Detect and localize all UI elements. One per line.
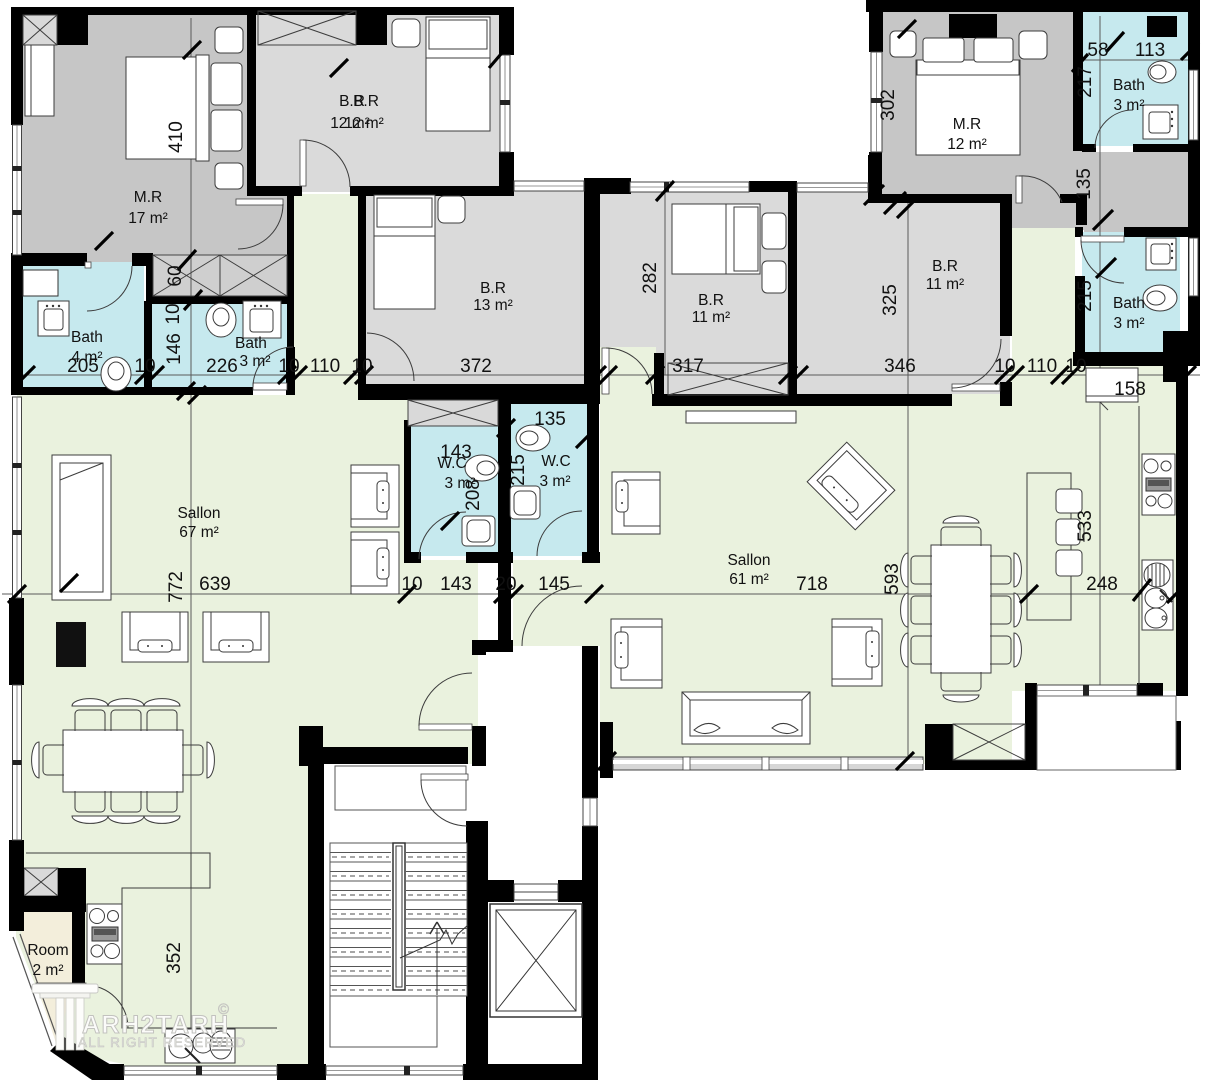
svg-text:226: 226 (206, 356, 238, 377)
svg-text:B.R: B.R (698, 292, 724, 309)
svg-text:4 m²: 4 m² (72, 349, 103, 366)
svg-text:20: 20 (495, 574, 516, 595)
svg-text:2 m²: 2 m² (33, 962, 64, 979)
svg-text:352: 352 (164, 942, 185, 974)
svg-text:©: © (218, 1001, 229, 1018)
svg-text:135: 135 (534, 409, 566, 430)
svg-text:10: 10 (134, 356, 155, 377)
svg-text:12 m²: 12 m² (947, 136, 987, 153)
svg-text:M.R: M.R (953, 116, 981, 133)
svg-text:282: 282 (640, 262, 661, 294)
svg-text:143: 143 (440, 574, 472, 595)
svg-text:17 m²: 17 m² (128, 210, 168, 227)
svg-text:60: 60 (165, 265, 186, 286)
svg-text:346: 346 (884, 356, 916, 377)
svg-text:113: 113 (1135, 40, 1165, 61)
svg-text:217: 217 (1075, 66, 1096, 98)
svg-text:215: 215 (1075, 280, 1096, 312)
svg-text:W.C: W.C (541, 453, 570, 470)
svg-text:10: 10 (1065, 356, 1086, 377)
svg-text:11 m²: 11 m² (926, 276, 964, 293)
svg-text:B.R: B.R (480, 280, 506, 297)
svg-text:145: 145 (538, 574, 570, 595)
svg-text:302: 302 (878, 89, 899, 121)
svg-text:B.R: B.R (932, 258, 958, 275)
svg-text:ALL RIGHT RESERVED: ALL RIGHT RESERVED (78, 1035, 246, 1050)
svg-text:10: 10 (351, 356, 372, 377)
svg-text:10: 10 (994, 356, 1015, 377)
svg-text:10: 10 (278, 356, 299, 377)
svg-text:Bath: Bath (1113, 77, 1145, 94)
svg-text:372: 372 (460, 356, 492, 377)
svg-text:Room: Room (27, 942, 68, 959)
svg-text:3 m²: 3 m² (1114, 315, 1145, 332)
svg-text:772: 772 (166, 571, 187, 603)
svg-text:135: 135 (1074, 168, 1095, 200)
svg-text:110: 110 (310, 356, 340, 377)
svg-text:12 m²: 12 m² (344, 115, 384, 132)
svg-text:B.R: B.R (353, 93, 379, 110)
svg-text:718: 718 (796, 574, 828, 595)
svg-text:3 m²: 3 m² (445, 475, 476, 492)
svg-text:158: 158 (1114, 379, 1146, 400)
svg-text:410: 410 (166, 121, 187, 153)
svg-text:317: 317 (672, 356, 704, 377)
svg-text:10: 10 (401, 574, 422, 595)
svg-text:3 m²: 3 m² (240, 353, 271, 370)
svg-text:3 m²: 3 m² (540, 473, 571, 490)
svg-text:215: 215 (508, 454, 529, 486)
svg-text:Bath: Bath (1113, 295, 1145, 312)
svg-text:67 m²: 67 m² (179, 524, 219, 541)
svg-text:533: 533 (1075, 510, 1096, 542)
svg-text:325: 325 (880, 284, 901, 316)
svg-text:13 m²: 13 m² (473, 297, 513, 314)
svg-text:146: 146 (164, 333, 185, 365)
svg-text:61 m²: 61 m² (729, 571, 769, 588)
svg-text:10: 10 (163, 303, 184, 324)
svg-text:Sallon: Sallon (177, 505, 220, 522)
svg-text:Bath: Bath (71, 329, 103, 346)
svg-text:W.C: W.C (437, 455, 466, 472)
svg-text:11 m²: 11 m² (692, 309, 730, 326)
svg-text:248: 248 (1086, 574, 1118, 595)
svg-text:58: 58 (1087, 40, 1108, 61)
svg-text:110: 110 (1027, 356, 1057, 377)
svg-text:3 m²: 3 m² (1114, 97, 1145, 114)
svg-text:639: 639 (199, 574, 231, 595)
svg-text:M.R: M.R (134, 189, 162, 206)
svg-text:Bath: Bath (235, 335, 267, 352)
svg-text:Sallon: Sallon (727, 552, 770, 569)
svg-text:593: 593 (882, 563, 903, 595)
